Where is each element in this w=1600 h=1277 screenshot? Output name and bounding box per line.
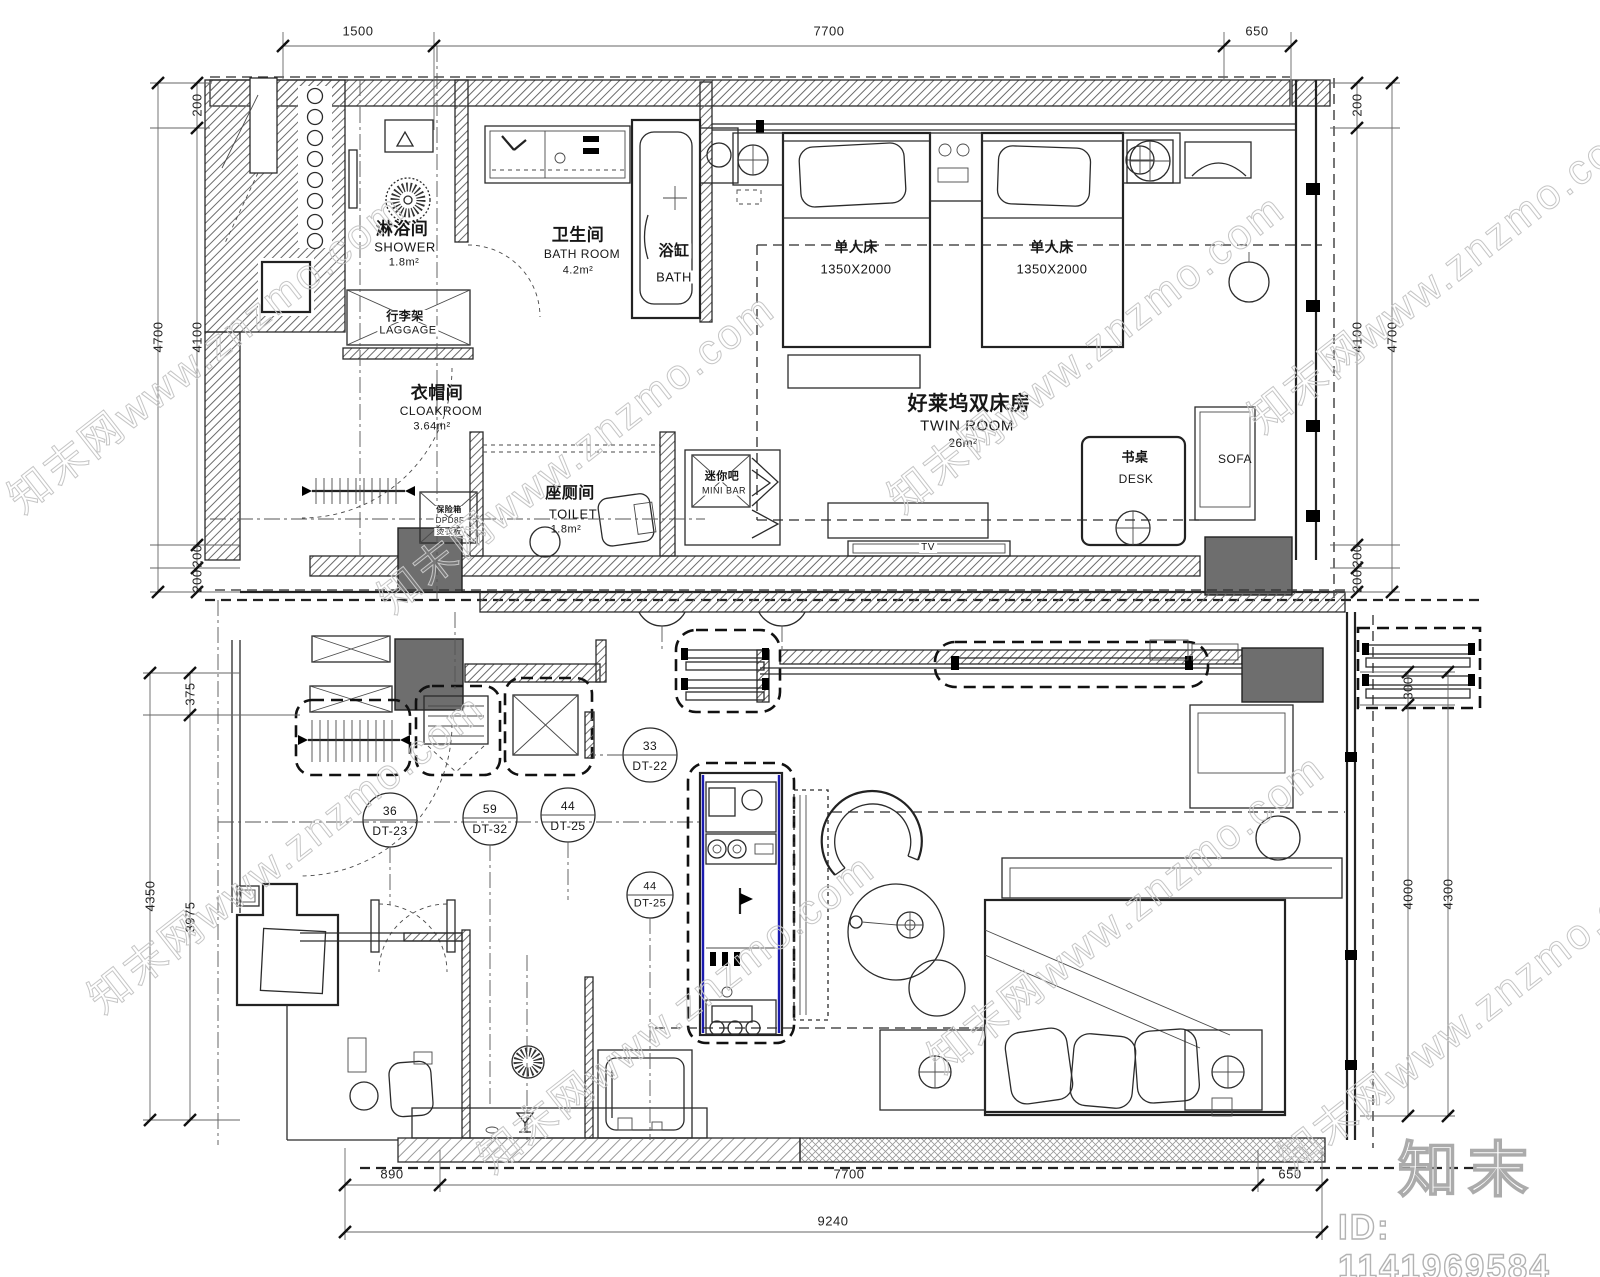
- dim-bl-4350: 4350: [144, 881, 157, 912]
- callout-dt25b-num: 44: [643, 882, 656, 893]
- dim-left-4700: 4700: [152, 322, 165, 353]
- room-twin-en: TWIN ROOM: [920, 419, 1014, 434]
- plan-linework: [0, 0, 1600, 1277]
- room-bathroom-area: 4.2m²: [563, 266, 594, 277]
- callout-dt22-code: DT-22: [632, 760, 667, 772]
- dim-right-4100: 4100: [1351, 322, 1364, 353]
- dim-right-200b: 200: [1351, 544, 1364, 567]
- room-twin-area: 26m²: [948, 437, 977, 449]
- dim-br-300: 300: [1402, 676, 1415, 699]
- desk-cn: 书桌: [1121, 451, 1148, 464]
- dim-left-200a: 200: [191, 93, 204, 116]
- dim-top-1500: 1500: [343, 25, 374, 38]
- room-minibar-cn: 迷你吧: [703, 472, 742, 483]
- room-luggage-cn: 行李架: [384, 310, 426, 322]
- dim-bl-3975: 3975: [184, 902, 197, 933]
- callout-dt25a-code: DT-25: [550, 820, 585, 832]
- callout-dt22-num: 33: [643, 740, 657, 752]
- safe-line3: 烫衣板: [434, 528, 464, 536]
- safe-line1: 保险箱: [434, 506, 464, 514]
- room-cloakroom-area: 3.64m²: [413, 422, 450, 433]
- room-minibar-en: MINI BAR: [700, 487, 748, 496]
- desk-en: DESK: [1119, 473, 1154, 485]
- dim-top-650: 650: [1245, 25, 1268, 38]
- cad-floorplan-sheet: 1500 7700 650 200 4100 200 200 4700 200 …: [0, 0, 1600, 1277]
- dim-left-200c: 200: [191, 569, 204, 592]
- room-cloakroom-cn: 衣帽间: [411, 385, 464, 402]
- dim-bottom-650: 650: [1278, 1168, 1301, 1181]
- room-twin-cn: 好莱坞双床房: [908, 394, 1031, 414]
- dim-br-4000: 4000: [1402, 879, 1415, 910]
- room-shower-en: SHOWER: [374, 241, 436, 254]
- room-toilet-cn: 座厕间: [545, 486, 595, 502]
- dim-bottom-7700: 7700: [834, 1168, 865, 1181]
- dim-bottom-890: 890: [380, 1168, 403, 1181]
- callout-dt25b-code: DT-25: [634, 899, 666, 910]
- room-toilet-en: TOILET: [549, 508, 597, 521]
- callout-dt23-code: DT-23: [372, 825, 407, 837]
- dim-bl-375: 375: [184, 682, 197, 705]
- room-bathtub-en: BATH: [654, 271, 694, 284]
- room-shower-area: 1.8m²: [389, 258, 420, 269]
- dim-br-4300: 4300: [1442, 879, 1455, 910]
- bed-left-cn: 单人床: [834, 240, 878, 254]
- room-shower-cn: 淋浴间: [376, 221, 429, 238]
- room-bathtub-cn: 浴缸: [656, 244, 691, 259]
- callout-dt32-code: DT-32: [472, 823, 507, 835]
- bed-left-size: 1350X2000: [820, 263, 891, 276]
- bed-right-cn: 单人床: [1030, 240, 1074, 254]
- dim-left-4100: 4100: [191, 322, 204, 353]
- dim-right-4700: 4700: [1386, 322, 1399, 353]
- dim-top-7700: 7700: [814, 25, 845, 38]
- safe-line2: DPD8F: [434, 517, 467, 525]
- brand-logo-text: 知末: [1398, 1122, 1538, 1209]
- dim-right-200a: 200: [1351, 93, 1364, 116]
- dim-right-200c: 200: [1351, 569, 1364, 592]
- room-bathroom-cn: 卫生间: [552, 227, 605, 244]
- image-id-label: ID: 1141969584: [1338, 1208, 1600, 1277]
- room-luggage-en: LAGGAGE: [377, 326, 438, 337]
- dim-left-200b: 200: [191, 544, 204, 567]
- callout-dt23-num: 36: [383, 805, 397, 817]
- room-bathroom-en: BATH ROOM: [544, 248, 620, 260]
- sofa-label: SOFA: [1218, 453, 1252, 465]
- callout-dt32-num: 59: [483, 803, 497, 815]
- room-cloakroom-en: CLOAKROOM: [400, 405, 483, 417]
- bed-right-size: 1350X2000: [1016, 263, 1087, 276]
- room-toilet-area: 1.8m²: [551, 525, 582, 536]
- callout-dt25a-num: 44: [561, 800, 575, 812]
- dim-bottom-9240: 9240: [818, 1215, 849, 1228]
- tv-label: TV: [919, 543, 937, 553]
